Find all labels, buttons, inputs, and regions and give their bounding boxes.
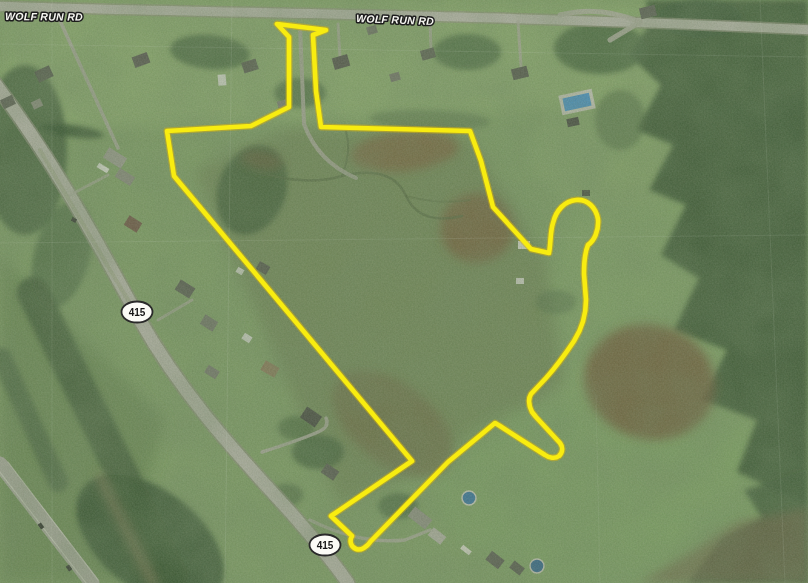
texture-grain-light-overlay bbox=[0, 0, 808, 583]
aerial-parcel-map: 415415 WOLF RUN RDWOLF RUN RD bbox=[0, 0, 808, 583]
map-canvas: 415415 WOLF RUN RDWOLF RUN RD bbox=[0, 0, 808, 583]
road-name-label: WOLF RUN RD bbox=[5, 10, 83, 23]
route-shield-number: 415 bbox=[317, 540, 334, 551]
route-shield-number: 415 bbox=[129, 307, 146, 318]
